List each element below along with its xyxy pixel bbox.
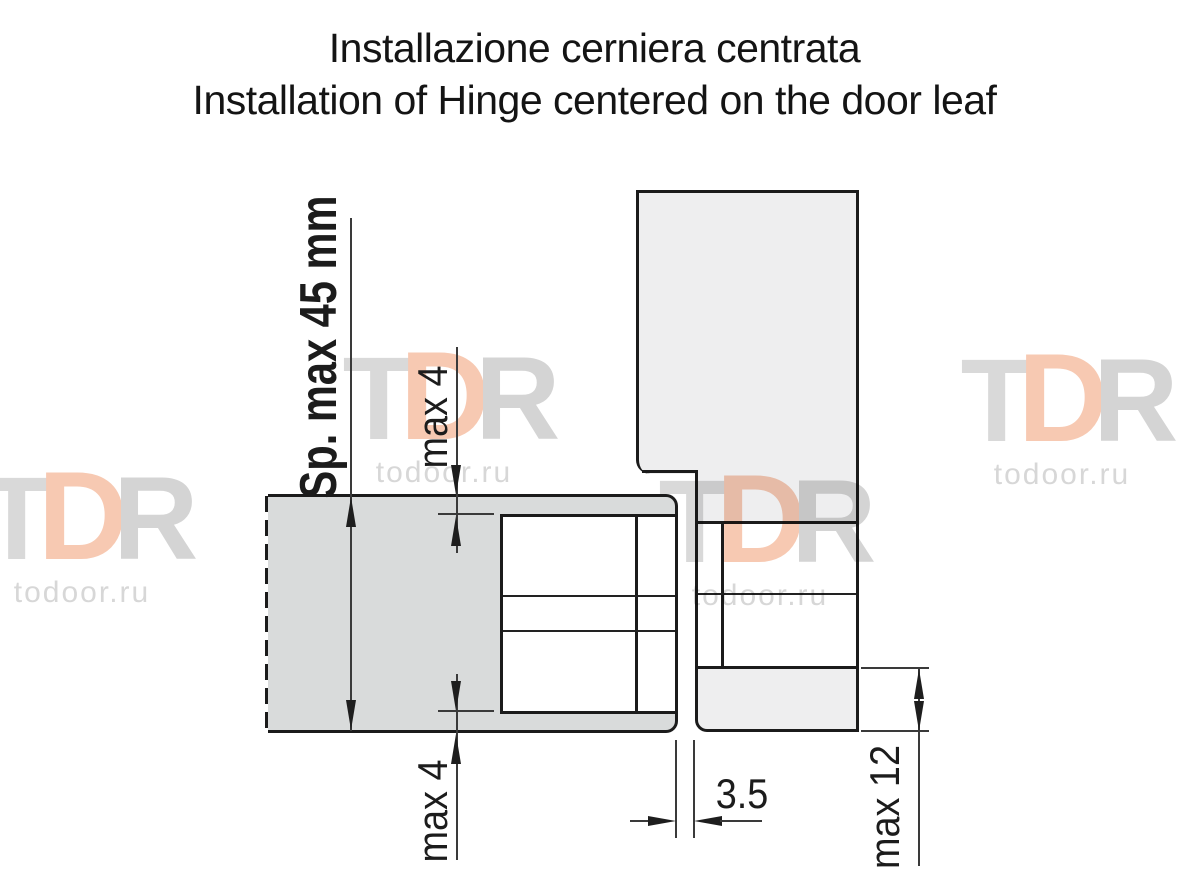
dimension-tick (438, 710, 494, 712)
hinge-frame-line (698, 593, 856, 595)
dimension-arrowhead-right (648, 816, 676, 826)
door-frame-upper-section (636, 190, 859, 474)
technical-drawing-page: Installazione cerniera centrata Installa… (0, 0, 1189, 893)
hinge-leaf-divider (635, 517, 638, 711)
dimension-arrowhead-down (451, 465, 461, 495)
door-thickness-label: Sp. max 45 mm (289, 196, 349, 499)
dimension-tick (438, 513, 494, 515)
door-thickness-dimension-line (350, 218, 352, 731)
tdr-letter-d: D (38, 446, 113, 586)
tdr-letter-r: R (475, 333, 545, 465)
dimension-arrowhead-down (346, 700, 356, 730)
tdr-letter-t: T (0, 453, 38, 585)
dimension-arrowhead-up (346, 497, 356, 527)
door-leaf-dashed-cut-edge (265, 496, 268, 731)
tdr-letter-d: D (1018, 328, 1093, 468)
tdr-letter-r: R (1093, 335, 1163, 467)
page-title-italian: Installazione cerniera centrata (0, 25, 1189, 72)
tdr-letter-r: R (113, 453, 183, 585)
dimension-arrowhead-down (451, 681, 461, 711)
frame-overlap-label: max 12 (861, 745, 909, 869)
todoor-site-text: todoor.ru (950, 458, 1174, 492)
dimension-arrowhead-up (914, 669, 924, 699)
gap-dimension-line-right (720, 820, 762, 822)
hinge-frame-plate (695, 521, 859, 669)
tdr-logo-watermark: TDR todoor.ru (0, 468, 194, 610)
door-frame-gap-label: 3.5 (716, 770, 769, 818)
todoor-site-text: todoor.ru (0, 576, 194, 610)
tdr-logo-letters: TDR (0, 468, 194, 566)
page-title-english: Installation of Hinge centered on the do… (0, 77, 1189, 124)
tdr-letter-t: T (961, 335, 1018, 467)
hinge-frame-divider (721, 524, 724, 666)
dimension-arrowhead-down (914, 701, 924, 731)
tdr-logo-letters: TDR (950, 350, 1174, 448)
hinge-leaf-line-upper (503, 595, 675, 597)
door-frame-step-edge (642, 470, 698, 473)
hinge-leaf-line-lower (503, 630, 675, 632)
hinge-bottom-inset-label: max 4 (409, 760, 457, 863)
hinge-top-inset-label: max 4 (409, 366, 457, 469)
dimension-arrowhead-up (451, 516, 461, 546)
tdr-logo-watermark: TDR todoor.ru (950, 350, 1174, 492)
hinge-leaf-plate (500, 514, 678, 714)
